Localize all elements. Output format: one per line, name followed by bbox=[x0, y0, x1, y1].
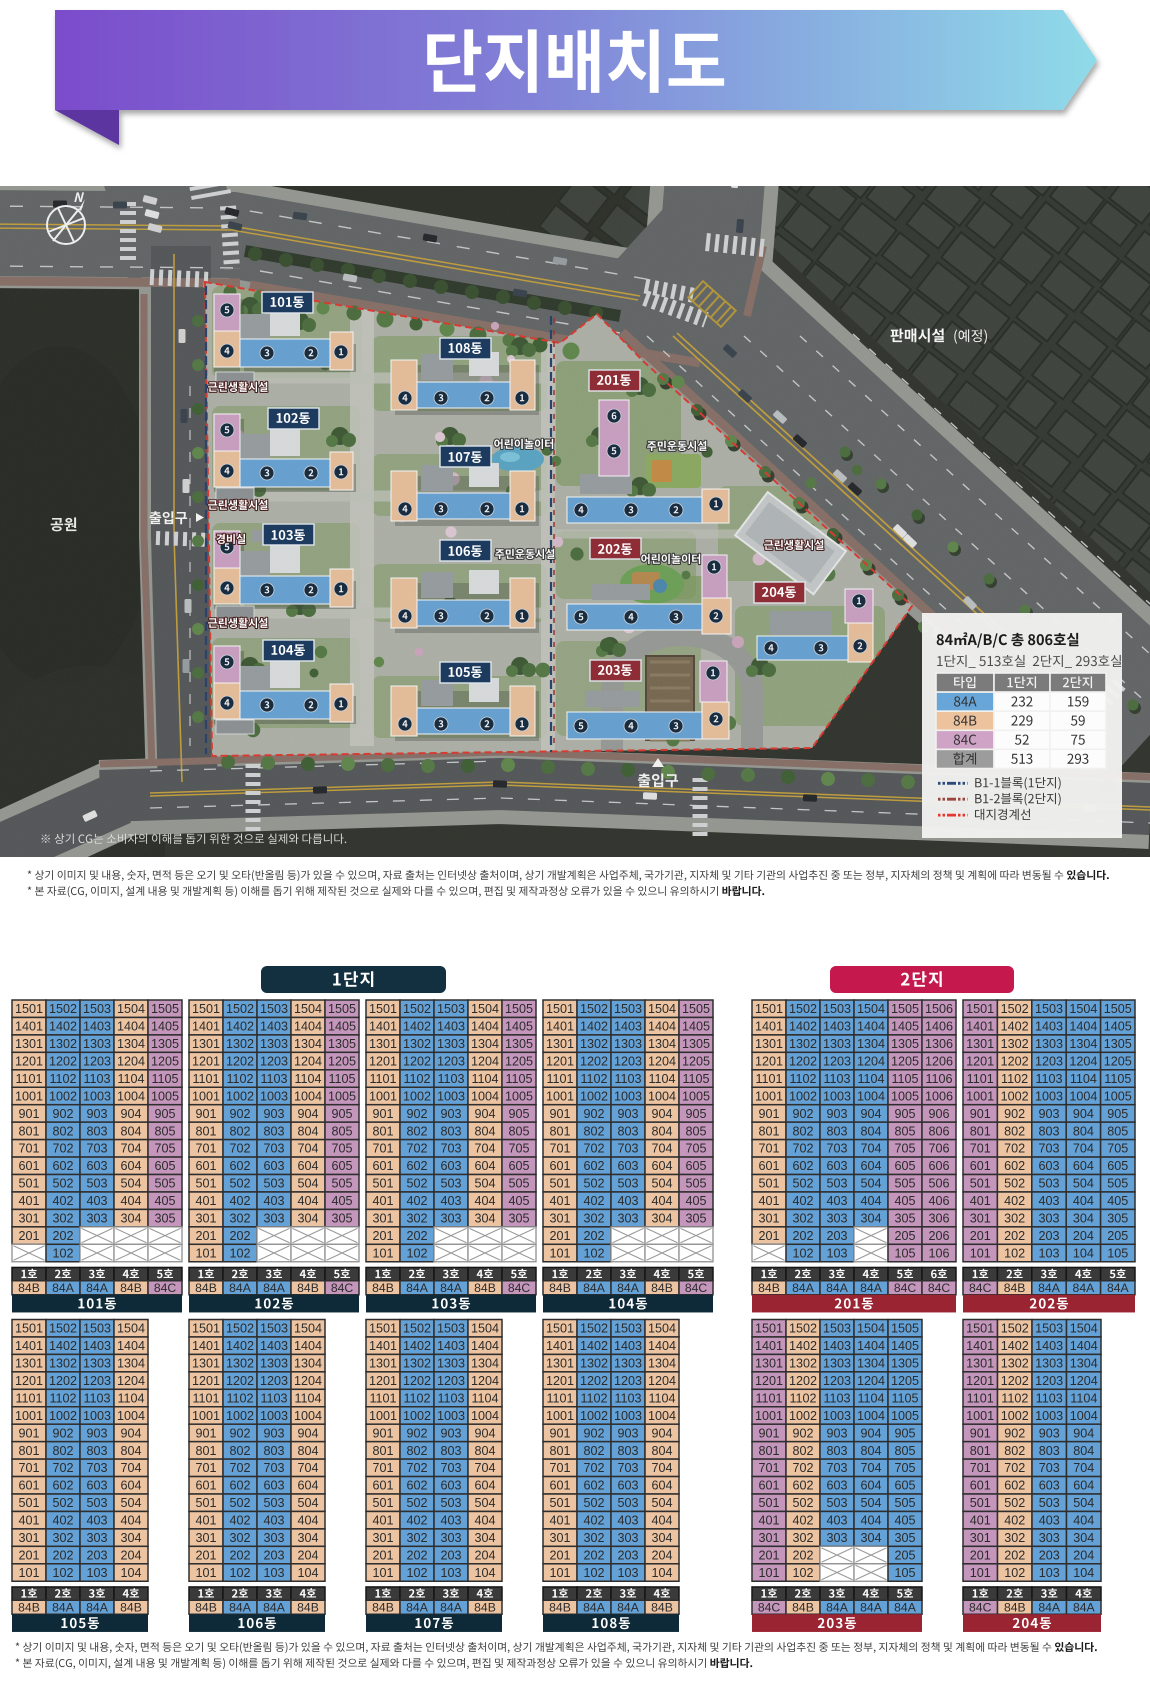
svg-text:305: 305 bbox=[1107, 1212, 1128, 1226]
svg-text:1301: 1301 bbox=[755, 1037, 783, 1051]
svg-text:1405: 1405 bbox=[891, 1020, 919, 1034]
svg-text:803: 803 bbox=[617, 1444, 638, 1458]
svg-text:1004: 1004 bbox=[117, 1089, 145, 1103]
svg-text:1101: 1101 bbox=[15, 1072, 42, 1086]
svg-text:705: 705 bbox=[508, 1142, 529, 1156]
svg-text:404: 404 bbox=[1073, 1514, 1094, 1528]
svg-text:84B: 84B bbox=[120, 1281, 142, 1295]
svg-text:905: 905 bbox=[154, 1107, 175, 1121]
svg-text:1102: 1102 bbox=[403, 1072, 430, 1086]
svg-text:1305: 1305 bbox=[891, 1357, 919, 1371]
svg-text:303: 303 bbox=[86, 1531, 107, 1545]
svg-text:605: 605 bbox=[331, 1159, 352, 1173]
svg-text:401: 401 bbox=[758, 1194, 779, 1208]
svg-text:304: 304 bbox=[651, 1531, 672, 1545]
svg-text:1005: 1005 bbox=[891, 1089, 919, 1103]
svg-text:504: 504 bbox=[860, 1496, 881, 1510]
svg-text:84B: 84B bbox=[549, 1600, 571, 1614]
svg-text:904: 904 bbox=[120, 1426, 141, 1440]
svg-text:1003: 1003 bbox=[260, 1409, 288, 1423]
svg-text:1305: 1305 bbox=[328, 1037, 356, 1051]
svg-text:1504: 1504 bbox=[294, 1322, 322, 1336]
svg-text:1003: 1003 bbox=[1035, 1089, 1063, 1103]
svg-text:1103: 1103 bbox=[614, 1072, 641, 1086]
svg-text:1005: 1005 bbox=[1104, 1089, 1132, 1103]
svg-text:1102: 1102 bbox=[403, 1391, 430, 1405]
svg-text:84B: 84B bbox=[474, 1281, 496, 1295]
svg-text:304: 304 bbox=[297, 1531, 318, 1545]
svg-text:703: 703 bbox=[263, 1461, 284, 1475]
svg-text:1404: 1404 bbox=[857, 1339, 885, 1353]
svg-text:1403: 1403 bbox=[823, 1020, 851, 1034]
svg-text:902: 902 bbox=[406, 1107, 427, 1121]
svg-text:1003: 1003 bbox=[823, 1409, 851, 1423]
svg-text:84A: 84A bbox=[1038, 1281, 1061, 1295]
svg-text:902: 902 bbox=[583, 1426, 604, 1440]
svg-text:303: 303 bbox=[1038, 1212, 1059, 1226]
svg-text:1001: 1001 bbox=[369, 1089, 397, 1103]
svg-text:704: 704 bbox=[651, 1142, 672, 1156]
svg-text:701: 701 bbox=[372, 1461, 393, 1475]
svg-text:1101: 1101 bbox=[15, 1391, 42, 1405]
svg-text:801: 801 bbox=[372, 1124, 393, 1138]
svg-text:503: 503 bbox=[617, 1177, 638, 1191]
svg-text:1102: 1102 bbox=[789, 1391, 816, 1405]
svg-text:804: 804 bbox=[120, 1444, 141, 1458]
svg-text:1505: 1505 bbox=[1104, 1002, 1132, 1016]
svg-text:502: 502 bbox=[792, 1496, 813, 1510]
svg-text:84B: 84B bbox=[195, 1281, 217, 1295]
svg-text:803: 803 bbox=[617, 1124, 638, 1138]
svg-text:1504: 1504 bbox=[857, 1002, 885, 1016]
svg-text:902: 902 bbox=[229, 1107, 250, 1121]
svg-text:202: 202 bbox=[583, 1229, 604, 1243]
svg-text:704: 704 bbox=[1073, 1461, 1094, 1475]
svg-text:1305: 1305 bbox=[891, 1037, 919, 1051]
svg-text:204: 204 bbox=[297, 1548, 318, 1562]
svg-text:1001: 1001 bbox=[546, 1409, 574, 1423]
svg-text:903: 903 bbox=[86, 1107, 107, 1121]
svg-text:903: 903 bbox=[440, 1107, 461, 1121]
svg-text:304: 304 bbox=[297, 1212, 318, 1226]
svg-text:1202: 1202 bbox=[49, 1054, 77, 1068]
svg-text:605: 605 bbox=[1107, 1159, 1128, 1173]
svg-text:604: 604 bbox=[860, 1159, 881, 1173]
svg-text:901: 901 bbox=[18, 1426, 39, 1440]
svg-text:401: 401 bbox=[195, 1514, 216, 1528]
svg-text:401: 401 bbox=[372, 1194, 393, 1208]
svg-text:302: 302 bbox=[229, 1531, 250, 1545]
svg-text:1503: 1503 bbox=[437, 1322, 465, 1336]
svg-text:1104: 1104 bbox=[294, 1391, 321, 1405]
svg-text:1102: 1102 bbox=[226, 1072, 253, 1086]
svg-text:84C: 84C bbox=[685, 1281, 708, 1295]
svg-text:1403: 1403 bbox=[260, 1339, 288, 1353]
svg-text:803: 803 bbox=[1038, 1124, 1059, 1138]
svg-text:503: 503 bbox=[826, 1496, 847, 1510]
svg-text:203: 203 bbox=[1039, 1548, 1060, 1562]
svg-text:202: 202 bbox=[52, 1548, 73, 1562]
svg-text:1102: 1102 bbox=[580, 1391, 607, 1405]
svg-text:401: 401 bbox=[18, 1194, 39, 1208]
svg-text:1103: 1103 bbox=[83, 1072, 110, 1086]
svg-text:301: 301 bbox=[372, 1531, 393, 1545]
svg-text:201: 201 bbox=[758, 1548, 779, 1562]
svg-text:1004: 1004 bbox=[648, 1409, 676, 1423]
svg-text:1405: 1405 bbox=[328, 1020, 356, 1034]
svg-text:505: 505 bbox=[154, 1177, 175, 1191]
svg-text:202: 202 bbox=[229, 1229, 250, 1243]
svg-text:102: 102 bbox=[583, 1566, 604, 1580]
svg-text:101: 101 bbox=[549, 1246, 570, 1260]
svg-text:703: 703 bbox=[86, 1142, 107, 1156]
svg-text:401: 401 bbox=[372, 1514, 393, 1528]
svg-text:102: 102 bbox=[1004, 1246, 1025, 1260]
svg-text:301: 301 bbox=[758, 1531, 779, 1545]
svg-text:1305: 1305 bbox=[1104, 1037, 1132, 1051]
svg-text:1103: 1103 bbox=[823, 1391, 850, 1405]
svg-text:606: 606 bbox=[928, 1159, 949, 1173]
svg-text:301: 301 bbox=[970, 1212, 991, 1226]
svg-text:1202: 1202 bbox=[49, 1374, 77, 1388]
svg-text:401: 401 bbox=[758, 1514, 779, 1528]
svg-text:103: 103 bbox=[826, 1246, 847, 1260]
svg-text:905: 905 bbox=[508, 1107, 529, 1121]
svg-text:106: 106 bbox=[928, 1246, 949, 1260]
svg-text:702: 702 bbox=[1004, 1142, 1025, 1156]
svg-text:902: 902 bbox=[52, 1107, 73, 1121]
svg-text:84A: 84A bbox=[792, 1281, 815, 1295]
svg-text:1304: 1304 bbox=[1069, 1037, 1097, 1051]
svg-text:701: 701 bbox=[549, 1461, 570, 1475]
svg-text:1505: 1505 bbox=[505, 1002, 533, 1016]
svg-text:101: 101 bbox=[195, 1246, 216, 1260]
svg-text:804: 804 bbox=[120, 1124, 141, 1138]
svg-text:1103: 1103 bbox=[614, 1391, 641, 1405]
svg-text:703: 703 bbox=[826, 1142, 847, 1156]
svg-text:1404: 1404 bbox=[1069, 1020, 1097, 1034]
svg-text:302: 302 bbox=[406, 1212, 427, 1226]
svg-text:301: 301 bbox=[970, 1531, 991, 1545]
svg-text:305: 305 bbox=[894, 1212, 915, 1226]
svg-text:904: 904 bbox=[474, 1426, 495, 1440]
svg-text:1502: 1502 bbox=[1001, 1002, 1029, 1016]
svg-text:84A: 84A bbox=[440, 1281, 463, 1295]
svg-text:502: 502 bbox=[583, 1496, 604, 1510]
svg-text:1401: 1401 bbox=[15, 1339, 43, 1353]
svg-text:403: 403 bbox=[826, 1514, 847, 1528]
svg-text:702: 702 bbox=[406, 1142, 427, 1156]
svg-text:1206: 1206 bbox=[925, 1054, 953, 1068]
svg-text:904: 904 bbox=[860, 1426, 881, 1440]
svg-text:405: 405 bbox=[894, 1514, 915, 1528]
svg-text:601: 601 bbox=[195, 1159, 216, 1173]
svg-text:803: 803 bbox=[826, 1124, 847, 1138]
svg-text:1002: 1002 bbox=[1001, 1089, 1029, 1103]
svg-text:1001: 1001 bbox=[546, 1089, 574, 1103]
svg-text:1402: 1402 bbox=[580, 1339, 608, 1353]
svg-text:1302: 1302 bbox=[49, 1037, 77, 1051]
svg-text:1503: 1503 bbox=[1035, 1322, 1063, 1336]
svg-text:1203: 1203 bbox=[823, 1374, 851, 1388]
svg-text:703: 703 bbox=[617, 1142, 638, 1156]
svg-text:1404: 1404 bbox=[471, 1339, 499, 1353]
svg-text:1402: 1402 bbox=[789, 1339, 817, 1353]
svg-text:1501: 1501 bbox=[192, 1322, 220, 1336]
svg-text:84C: 84C bbox=[508, 1281, 531, 1295]
svg-text:1402: 1402 bbox=[49, 1020, 77, 1034]
svg-text:1003: 1003 bbox=[823, 1089, 851, 1103]
svg-text:1105: 1105 bbox=[328, 1072, 355, 1086]
svg-text:704: 704 bbox=[474, 1142, 495, 1156]
svg-text:504: 504 bbox=[297, 1177, 318, 1191]
svg-text:601: 601 bbox=[970, 1479, 991, 1493]
svg-text:84A: 84A bbox=[860, 1600, 883, 1614]
svg-text:603: 603 bbox=[440, 1159, 461, 1173]
svg-text:905: 905 bbox=[894, 1107, 915, 1121]
svg-text:1204: 1204 bbox=[117, 1054, 145, 1068]
svg-text:304: 304 bbox=[1073, 1531, 1094, 1545]
svg-text:703: 703 bbox=[617, 1461, 638, 1475]
svg-text:1203: 1203 bbox=[83, 1374, 111, 1388]
svg-text:1203: 1203 bbox=[260, 1374, 288, 1388]
svg-text:301: 301 bbox=[195, 1212, 216, 1226]
svg-text:1303: 1303 bbox=[260, 1357, 288, 1371]
svg-text:1001: 1001 bbox=[15, 1089, 43, 1103]
svg-text:1403: 1403 bbox=[83, 1020, 111, 1034]
svg-text:403: 403 bbox=[86, 1514, 107, 1528]
svg-text:805: 805 bbox=[508, 1124, 529, 1138]
svg-text:84A: 84A bbox=[826, 1600, 849, 1614]
svg-text:505: 505 bbox=[331, 1177, 352, 1191]
svg-text:302: 302 bbox=[1004, 1531, 1025, 1545]
svg-text:701: 701 bbox=[18, 1461, 39, 1475]
svg-text:804: 804 bbox=[297, 1444, 318, 1458]
svg-text:603: 603 bbox=[617, 1159, 638, 1173]
svg-text:505: 505 bbox=[508, 1177, 529, 1191]
svg-text:802: 802 bbox=[792, 1124, 813, 1138]
svg-text:404: 404 bbox=[120, 1194, 141, 1208]
svg-text:201: 201 bbox=[18, 1229, 39, 1243]
svg-text:902: 902 bbox=[583, 1107, 604, 1121]
svg-text:1302: 1302 bbox=[403, 1037, 431, 1051]
svg-text:1205: 1205 bbox=[328, 1054, 356, 1068]
svg-text:1105: 1105 bbox=[151, 1072, 178, 1086]
svg-text:602: 602 bbox=[792, 1159, 813, 1173]
svg-text:202: 202 bbox=[229, 1548, 250, 1562]
svg-text:303: 303 bbox=[440, 1212, 461, 1226]
svg-text:704: 704 bbox=[297, 1142, 318, 1156]
svg-text:1504: 1504 bbox=[471, 1002, 499, 1016]
svg-text:401: 401 bbox=[18, 1514, 39, 1528]
svg-text:201: 201 bbox=[18, 1548, 39, 1562]
svg-text:84A: 84A bbox=[86, 1600, 109, 1614]
svg-text:104: 104 bbox=[1073, 1566, 1094, 1580]
svg-text:84A: 84A bbox=[440, 1600, 463, 1614]
svg-text:84B: 84B bbox=[1004, 1281, 1026, 1295]
svg-text:1404: 1404 bbox=[1070, 1339, 1098, 1353]
svg-text:702: 702 bbox=[583, 1142, 604, 1156]
svg-text:1505: 1505 bbox=[151, 1002, 179, 1016]
svg-text:104: 104 bbox=[120, 1566, 141, 1580]
svg-text:305: 305 bbox=[508, 1212, 529, 1226]
svg-text:1504: 1504 bbox=[1070, 1322, 1098, 1336]
svg-text:1401: 1401 bbox=[192, 1339, 220, 1353]
svg-text:1201: 1201 bbox=[369, 1374, 397, 1388]
svg-text:404: 404 bbox=[474, 1194, 495, 1208]
svg-text:1303: 1303 bbox=[614, 1357, 642, 1371]
svg-text:705: 705 bbox=[894, 1142, 915, 1156]
svg-text:902: 902 bbox=[229, 1426, 250, 1440]
svg-text:1302: 1302 bbox=[403, 1357, 431, 1371]
svg-text:1203: 1203 bbox=[260, 1054, 288, 1068]
svg-text:1501: 1501 bbox=[546, 1002, 574, 1016]
svg-text:502: 502 bbox=[1004, 1177, 1025, 1191]
svg-text:806: 806 bbox=[928, 1124, 949, 1138]
svg-text:405: 405 bbox=[1107, 1194, 1128, 1208]
svg-text:1301: 1301 bbox=[15, 1037, 43, 1051]
svg-text:1105: 1105 bbox=[1104, 1072, 1131, 1086]
svg-text:1502: 1502 bbox=[226, 1322, 254, 1336]
svg-text:602: 602 bbox=[1004, 1159, 1025, 1173]
svg-text:504: 504 bbox=[651, 1496, 672, 1510]
svg-text:403: 403 bbox=[617, 1514, 638, 1528]
svg-text:802: 802 bbox=[583, 1444, 604, 1458]
svg-text:1201: 1201 bbox=[755, 1374, 783, 1388]
svg-text:1003: 1003 bbox=[614, 1089, 642, 1103]
svg-text:603: 603 bbox=[826, 1479, 847, 1493]
svg-text:1301: 1301 bbox=[192, 1037, 220, 1051]
svg-text:1306: 1306 bbox=[925, 1037, 953, 1051]
svg-text:502: 502 bbox=[406, 1496, 427, 1510]
svg-text:1401: 1401 bbox=[369, 1020, 397, 1034]
svg-text:905: 905 bbox=[331, 1107, 352, 1121]
svg-text:602: 602 bbox=[229, 1479, 250, 1493]
svg-text:1505: 1505 bbox=[328, 1002, 356, 1016]
svg-text:1402: 1402 bbox=[1001, 1020, 1029, 1034]
svg-text:403: 403 bbox=[440, 1194, 461, 1208]
svg-text:1401: 1401 bbox=[755, 1020, 783, 1034]
svg-text:1203: 1203 bbox=[823, 1054, 851, 1068]
svg-text:702: 702 bbox=[583, 1461, 604, 1475]
svg-text:1001: 1001 bbox=[15, 1409, 43, 1423]
svg-text:84A: 84A bbox=[263, 1600, 286, 1614]
svg-text:705: 705 bbox=[685, 1142, 706, 1156]
svg-text:84A: 84A bbox=[1073, 1600, 1096, 1614]
svg-text:1202: 1202 bbox=[403, 1374, 431, 1388]
svg-text:84B: 84B bbox=[1004, 1600, 1026, 1614]
svg-text:701: 701 bbox=[372, 1142, 393, 1156]
svg-text:1004: 1004 bbox=[294, 1409, 322, 1423]
svg-text:1403: 1403 bbox=[437, 1339, 465, 1353]
svg-text:705: 705 bbox=[894, 1461, 915, 1475]
svg-text:1102: 1102 bbox=[49, 1391, 76, 1405]
svg-text:1003: 1003 bbox=[1035, 1409, 1063, 1423]
svg-text:602: 602 bbox=[792, 1479, 813, 1493]
svg-text:603: 603 bbox=[1039, 1479, 1060, 1493]
svg-text:1104: 1104 bbox=[294, 1072, 321, 1086]
svg-text:84B: 84B bbox=[372, 1281, 394, 1295]
svg-text:403: 403 bbox=[1038, 1194, 1059, 1208]
svg-text:905: 905 bbox=[685, 1107, 706, 1121]
svg-text:84A: 84A bbox=[1107, 1281, 1130, 1295]
svg-text:902: 902 bbox=[52, 1426, 73, 1440]
svg-text:404: 404 bbox=[120, 1514, 141, 1528]
svg-text:1303: 1303 bbox=[83, 1037, 111, 1051]
svg-text:1205: 1205 bbox=[151, 1054, 179, 1068]
svg-text:102: 102 bbox=[229, 1566, 250, 1580]
svg-text:405: 405 bbox=[508, 1194, 529, 1208]
svg-text:1105: 1105 bbox=[891, 1391, 918, 1405]
svg-text:904: 904 bbox=[651, 1107, 672, 1121]
svg-text:1101: 1101 bbox=[546, 1072, 573, 1086]
svg-text:603: 603 bbox=[86, 1479, 107, 1493]
svg-text:202: 202 bbox=[792, 1229, 813, 1243]
svg-text:902: 902 bbox=[406, 1426, 427, 1440]
svg-text:903: 903 bbox=[826, 1426, 847, 1440]
svg-text:84B: 84B bbox=[297, 1600, 319, 1614]
svg-text:304: 304 bbox=[474, 1531, 495, 1545]
svg-text:702: 702 bbox=[52, 1142, 73, 1156]
svg-text:1001: 1001 bbox=[755, 1409, 783, 1423]
svg-text:103: 103 bbox=[1038, 1246, 1059, 1260]
svg-text:102: 102 bbox=[406, 1246, 427, 1260]
svg-text:302: 302 bbox=[229, 1212, 250, 1226]
svg-text:702: 702 bbox=[792, 1461, 813, 1475]
svg-text:605: 605 bbox=[894, 1159, 915, 1173]
svg-text:1104: 1104 bbox=[471, 1072, 498, 1086]
svg-text:901: 901 bbox=[18, 1107, 39, 1121]
svg-text:1502: 1502 bbox=[49, 1322, 77, 1336]
svg-text:1001: 1001 bbox=[966, 1409, 994, 1423]
svg-text:302: 302 bbox=[52, 1212, 73, 1226]
svg-text:1402: 1402 bbox=[403, 1339, 431, 1353]
svg-text:504: 504 bbox=[120, 1496, 141, 1510]
svg-text:505: 505 bbox=[894, 1177, 915, 1191]
svg-text:204: 204 bbox=[1073, 1229, 1094, 1243]
svg-text:202: 202 bbox=[792, 1548, 813, 1562]
svg-text:1202: 1202 bbox=[226, 1374, 254, 1388]
svg-text:84C: 84C bbox=[928, 1281, 951, 1295]
svg-text:1501: 1501 bbox=[15, 1002, 43, 1016]
svg-text:306: 306 bbox=[928, 1212, 949, 1226]
svg-text:804: 804 bbox=[474, 1124, 495, 1138]
svg-text:1001: 1001 bbox=[192, 1089, 220, 1103]
svg-text:404: 404 bbox=[297, 1194, 318, 1208]
svg-text:1204: 1204 bbox=[117, 1374, 145, 1388]
svg-text:1304: 1304 bbox=[117, 1357, 145, 1371]
svg-text:1103: 1103 bbox=[823, 1072, 850, 1086]
svg-text:601: 601 bbox=[970, 1159, 991, 1173]
svg-text:801: 801 bbox=[758, 1444, 779, 1458]
svg-text:1303: 1303 bbox=[823, 1037, 851, 1051]
svg-text:603: 603 bbox=[86, 1159, 107, 1173]
svg-text:102: 102 bbox=[406, 1566, 427, 1580]
svg-text:1302: 1302 bbox=[789, 1037, 817, 1051]
svg-text:402: 402 bbox=[406, 1194, 427, 1208]
svg-text:904: 904 bbox=[1073, 1107, 1094, 1121]
svg-text:301: 301 bbox=[18, 1212, 39, 1226]
svg-text:202: 202 bbox=[1004, 1229, 1025, 1243]
svg-text:1003: 1003 bbox=[260, 1089, 288, 1103]
svg-text:1104: 1104 bbox=[1070, 1391, 1097, 1405]
svg-text:1201: 1201 bbox=[966, 1374, 994, 1388]
svg-text:1302: 1302 bbox=[1001, 1357, 1029, 1371]
svg-text:102: 102 bbox=[229, 1246, 250, 1260]
svg-text:402: 402 bbox=[52, 1514, 73, 1528]
svg-text:405: 405 bbox=[685, 1194, 706, 1208]
svg-text:703: 703 bbox=[1039, 1461, 1060, 1475]
